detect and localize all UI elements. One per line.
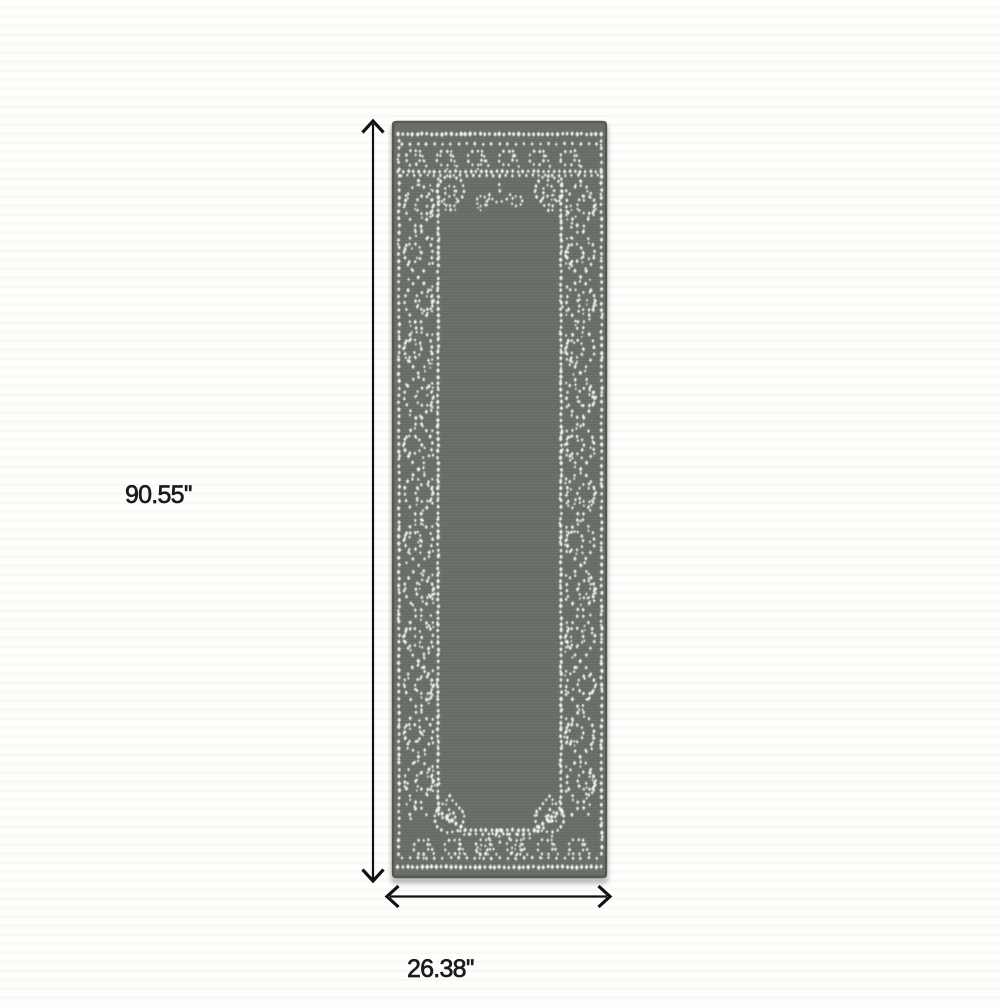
svg-text:90.55'': 90.55'' bbox=[125, 481, 192, 509]
svg-text:26.38'': 26.38'' bbox=[407, 955, 474, 983]
